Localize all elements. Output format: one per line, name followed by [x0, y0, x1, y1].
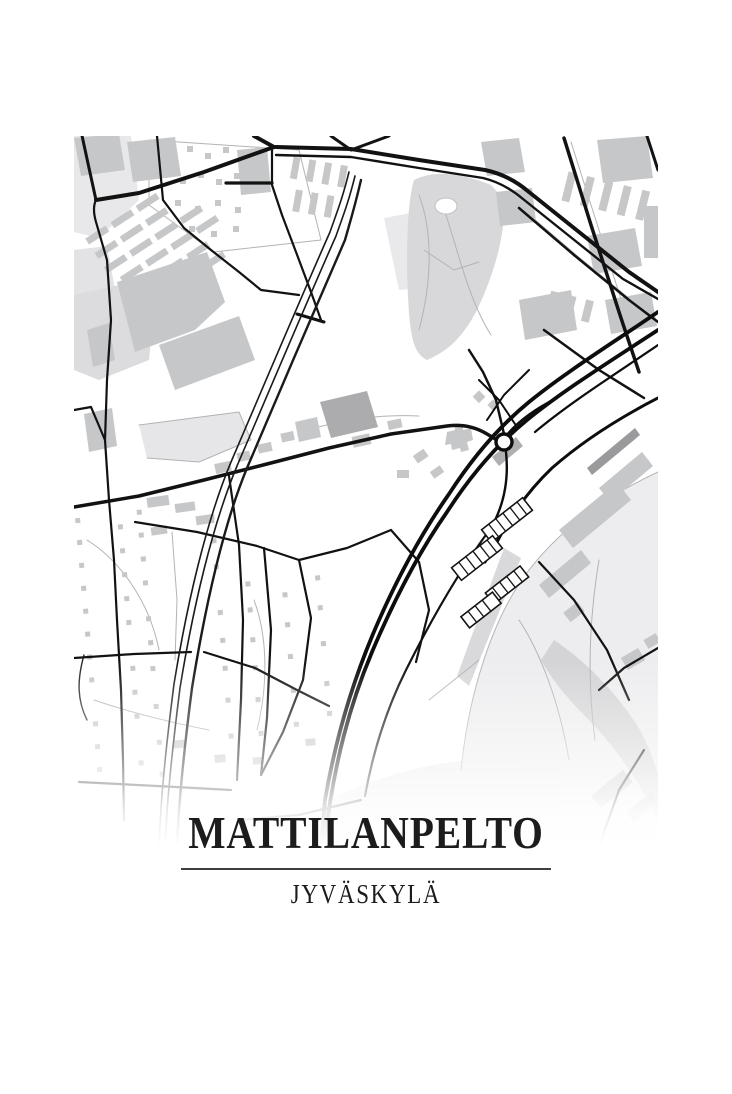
map-canvas [74, 136, 658, 846]
divider-line [181, 868, 551, 870]
map-poster: MATTILANPELTO JYVÄSKYLÄ [0, 0, 732, 1094]
poster-title: MATTILANPELTO [51, 810, 681, 856]
poster-caption: MATTILANPELTO JYVÄSKYLÄ [0, 810, 732, 909]
street-map-graphic [74, 136, 658, 846]
roundabout [496, 434, 512, 450]
poster-subtitle: JYVÄSKYLÄ [55, 879, 677, 909]
